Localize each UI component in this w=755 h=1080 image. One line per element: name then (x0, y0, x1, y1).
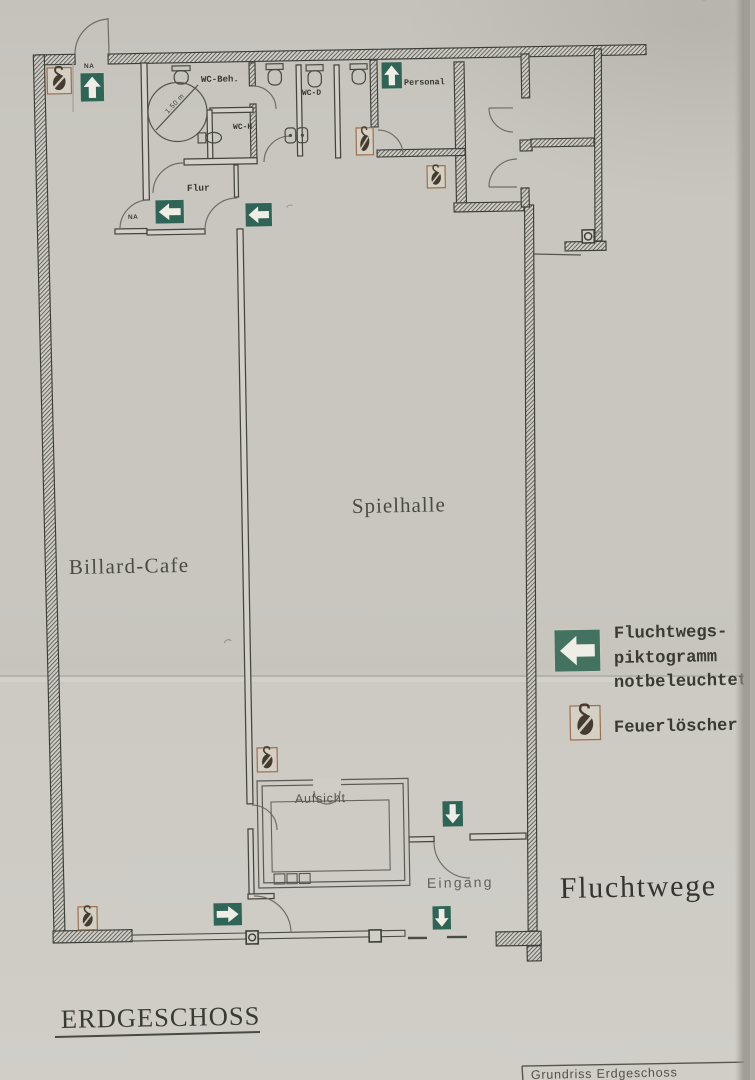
svg-text:Aufsicht: Aufsicht (295, 791, 346, 806)
svg-text:piktogramm: piktogramm (614, 648, 717, 669)
svg-text:ERDGESCHOSS: ERDGESCHOSS (61, 1001, 261, 1034)
svg-text:WC-Beh.: WC-Beh. (201, 74, 239, 85)
svg-text:notbeleuchtet: notbeleuchtet (614, 672, 748, 693)
svg-text:Personal: Personal (404, 77, 445, 88)
svg-text:Eingang: Eingang (427, 874, 494, 891)
svg-text:Grundriss Erdgeschoss: Grundriss Erdgeschoss (531, 1065, 678, 1080)
svg-text:WC-H: WC-H (233, 123, 253, 132)
svg-text:Fluchtwegs-: Fluchtwegs- (614, 623, 728, 644)
svg-text:Feuerlöscher: Feuerlöscher (614, 717, 738, 738)
svg-text:Flur: Flur (187, 183, 210, 194)
svg-text:1.50 m: 1.50 m (164, 93, 186, 116)
svg-text:Billard-Cafe: Billard-Cafe (69, 553, 190, 579)
svg-text:NA: NA (84, 63, 95, 70)
svg-text:NA: NA (128, 214, 139, 221)
svg-text:Fluchtwege: Fluchtwege (560, 869, 718, 905)
svg-text:WC-D: WC-D (302, 89, 322, 98)
svg-text:Spielhalle: Spielhalle (352, 492, 446, 518)
